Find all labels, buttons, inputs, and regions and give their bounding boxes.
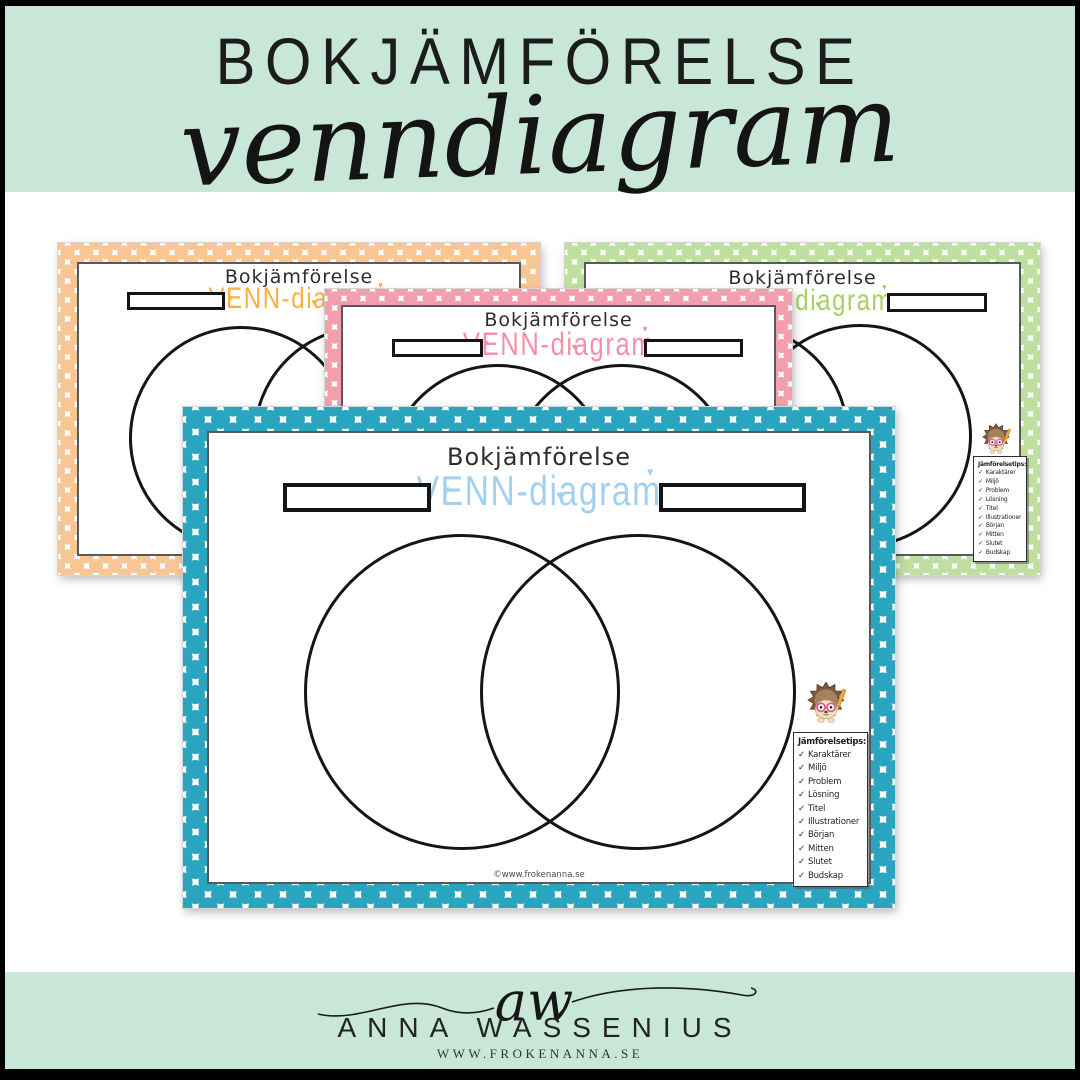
heart-icon: ♥	[229, 294, 235, 303]
comparison-tips-box: Jämförelsetips: ✓Karaktärer ✓Miljö ✓Prob…	[973, 456, 1027, 562]
tip-item: ✓Början	[978, 522, 1022, 531]
tips-title: Jämförelsetips:	[798, 736, 863, 749]
tip-item: ✓Lösning	[978, 496, 1022, 505]
tip-item: ✓Miljö	[978, 478, 1022, 487]
worksheet-paper: Bokjämförelse VENN-diagram♥♥♥ ©www.froke…	[207, 431, 871, 884]
check-icon: ✓	[798, 804, 805, 814]
check-icon: ✓	[978, 496, 983, 503]
tip-item: ✓Budskap	[978, 549, 1022, 558]
heart-icon: ♥	[882, 283, 888, 292]
tip-item: ✓Slutet	[798, 856, 863, 869]
tip-item: ✓Budskap	[798, 870, 863, 883]
book-title-box-left	[283, 483, 431, 512]
heart-icon: ♥	[484, 339, 490, 349]
heart-icon: ♥	[647, 466, 655, 479]
hedgehog-icon	[979, 423, 1013, 455]
check-icon: ✓	[978, 505, 983, 512]
tip-item: ✓Slutet	[978, 540, 1022, 549]
header-band: BOKJÄMFÖRELSE venndiagram	[0, 0, 1080, 192]
brand-name: ANNA WASSENIUS	[0, 1012, 1080, 1044]
check-icon: ✓	[798, 817, 805, 827]
check-icon: ✓	[798, 871, 805, 881]
tips-title: Jämförelsetips:	[978, 460, 1022, 469]
tip-item: ✓Karaktärer	[978, 469, 1022, 478]
tip-item: ✓Illustrationer	[978, 514, 1022, 523]
check-icon: ✓	[978, 531, 983, 538]
tip-item: ✓Mitten	[798, 843, 863, 856]
heart-icon: ♥	[556, 489, 564, 502]
tip-item: ✓Mitten	[978, 531, 1022, 540]
check-icon: ✓	[798, 844, 805, 854]
check-icon: ✓	[798, 857, 805, 867]
tip-item: ✓Problem	[978, 487, 1022, 496]
check-icon: ✓	[978, 487, 983, 494]
tip-item: ✓Illustrationer	[798, 816, 863, 829]
subtitle-text: VENN-diagram	[416, 467, 661, 514]
check-icon: ✓	[798, 790, 805, 800]
check-icon: ✓	[978, 549, 983, 556]
tip-item: ✓Titel	[798, 803, 863, 816]
heart-icon: ♥	[643, 325, 649, 335]
book-title-box-right	[644, 339, 743, 357]
subtitle-text: VENN-diagram	[463, 326, 654, 362]
check-icon: ✓	[978, 469, 983, 476]
check-icon: ✓	[978, 478, 983, 485]
check-icon: ✓	[978, 514, 983, 521]
book-title-box-left	[127, 292, 225, 310]
heart-icon: ♥	[312, 298, 318, 307]
check-icon: ✓	[798, 763, 805, 773]
check-icon: ✓	[978, 522, 983, 529]
watermark: ©www.frokenanna.se	[209, 870, 869, 880]
tip-item: ✓Problem	[798, 776, 863, 789]
book-title-box-right	[659, 483, 806, 512]
brand-website: WWW.FROKENANNA.SE	[0, 1046, 1080, 1062]
comparison-tips-box: Jämförelsetips: ✓Karaktärer ✓Miljö ✓Prob…	[793, 732, 868, 887]
heart-icon: ♥	[572, 343, 578, 353]
tip-item: ✓Titel	[978, 505, 1022, 514]
venn-circle-right	[480, 534, 796, 850]
tip-item: ✓Karaktärer	[798, 749, 863, 762]
check-icon: ✓	[978, 540, 983, 547]
book-title-box-left	[392, 339, 483, 357]
check-icon: ✓	[798, 830, 805, 840]
worksheet-teal: Bokjämförelse VENN-diagram♥♥♥ ©www.froke…	[183, 407, 895, 908]
heart-icon: ♥	[443, 484, 451, 497]
heart-icon: ♥	[815, 300, 821, 309]
hedgehog-icon	[803, 681, 849, 725]
tip-item: ✓Början	[798, 829, 863, 842]
tip-item: ✓Lösning	[798, 789, 863, 802]
check-icon: ✓	[798, 777, 805, 787]
book-title-box-right	[887, 293, 987, 312]
tip-item: ✓Miljö	[798, 762, 863, 775]
check-icon: ✓	[798, 750, 805, 760]
